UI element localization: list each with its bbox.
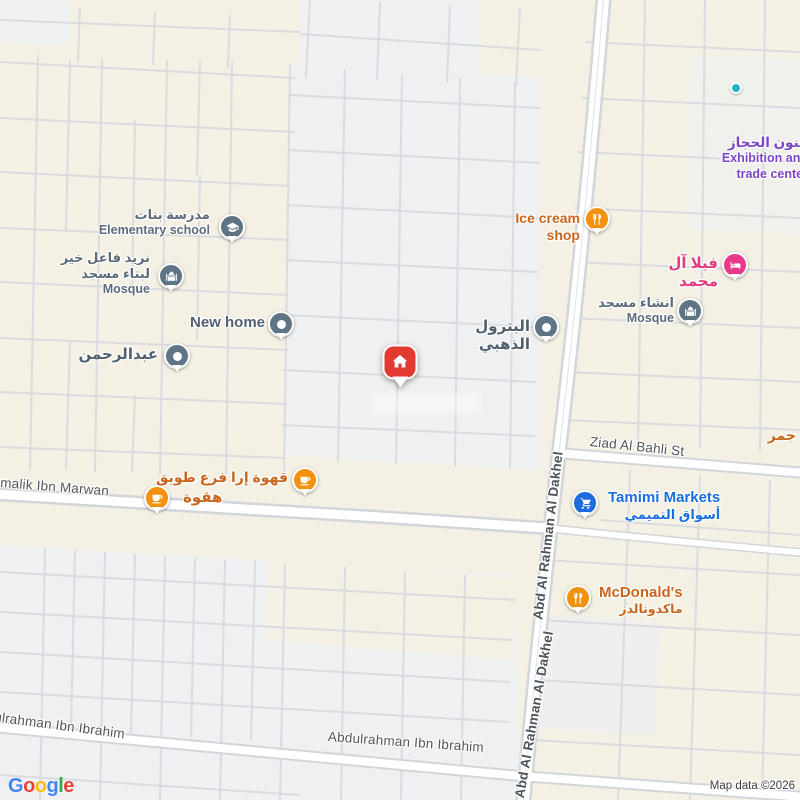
mcdonalds-pin[interactable] xyxy=(565,585,591,611)
mosque-charity-pin[interactable] xyxy=(158,263,184,289)
generic-place-icon xyxy=(542,323,551,332)
saa-jamar-label[interactable]: سعة جمر xyxy=(750,427,800,444)
elementary-school-label[interactable]: مدرسة بنات Elementary school xyxy=(88,207,210,238)
qahwa-era-pin[interactable] xyxy=(292,467,318,493)
watermark xyxy=(372,393,480,413)
map-canvas[interactable]: مدرسة بنات Elementary school نريد فاعل خ… xyxy=(0,0,800,800)
generic-place-icon xyxy=(173,352,182,361)
elementary-school-pin[interactable] xyxy=(219,214,245,240)
haqwa-label[interactable]: هقوة xyxy=(183,489,222,507)
map-data-attribution: Map data ©2026 xyxy=(710,780,795,792)
property-marker[interactable] xyxy=(383,345,418,380)
google-logo[interactable]: Google xyxy=(8,775,74,798)
mosque-icon xyxy=(684,305,697,318)
new-home-label[interactable]: New home xyxy=(185,314,265,332)
abdulrahman-label[interactable]: عبدالرحمن xyxy=(70,346,158,364)
villa-al-mohammed-pin[interactable] xyxy=(722,252,748,278)
restaurant-icon xyxy=(572,592,585,605)
qahwa-era-label[interactable]: قهوة إرا فرع طويق xyxy=(154,469,288,486)
golden-petrol-label[interactable]: البترول الذهبي xyxy=(428,318,530,355)
restaurant-icon xyxy=(591,213,604,226)
mosque-charity-label[interactable]: نريد فاعل خير لبناء مسجد Mosque xyxy=(52,250,150,297)
new-home-pin[interactable] xyxy=(268,311,294,337)
graduation-cap-icon xyxy=(226,221,239,234)
tamimi-markets-pin[interactable] xyxy=(572,490,598,516)
attraction-dot-pin[interactable] xyxy=(730,82,742,94)
house-icon xyxy=(391,353,410,372)
haqwa-pin[interactable] xyxy=(144,485,170,511)
coffee-cup-icon xyxy=(299,474,312,487)
property-marker-tail xyxy=(392,377,408,396)
abdulrahman-pin[interactable] xyxy=(164,343,190,369)
mosque-inshaa-pin[interactable] xyxy=(677,298,703,324)
villa-al-mohammed-label[interactable]: فيلا آل محمد xyxy=(638,255,718,292)
generic-place-icon xyxy=(277,320,286,329)
ice-cream-shop-pin[interactable] xyxy=(584,206,610,232)
bed-icon xyxy=(729,259,742,272)
coffee-cup-icon xyxy=(151,492,164,505)
property-marker-body xyxy=(383,345,418,380)
ice-cream-shop-label[interactable]: Ice cream shop xyxy=(484,210,580,244)
exhibition-center-label[interactable]: فنون الحجاز Exhibition and trade center xyxy=(688,135,800,182)
shopping-cart-icon xyxy=(579,497,592,510)
golden-petrol-pin[interactable] xyxy=(533,314,559,340)
tamimi-markets-label[interactable]: Tamimi Markets أسواق التميمي xyxy=(608,489,720,523)
mosque-icon xyxy=(165,270,178,283)
mcdonalds-label[interactable]: McDonald's ماكدونالدز xyxy=(599,584,683,618)
mosque-inshaa-label[interactable]: انشاء مسجد Mosque xyxy=(598,295,674,326)
